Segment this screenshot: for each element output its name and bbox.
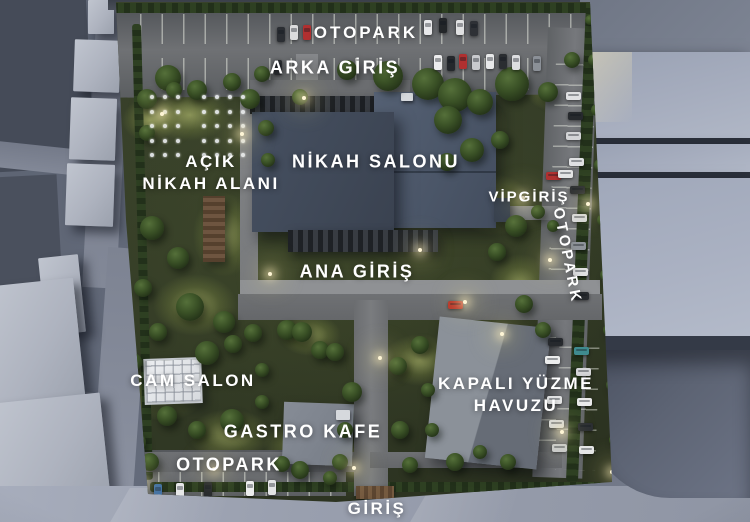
tree <box>167 247 189 269</box>
street-light <box>378 356 382 360</box>
ceremony-seat-dot <box>176 124 180 128</box>
ceremony-seat-dot <box>202 110 206 114</box>
label-otopark-bottom: OTOPARK <box>176 453 282 476</box>
car <box>558 170 573 178</box>
street-light <box>352 466 356 470</box>
ceremony-seat-dot <box>202 95 206 99</box>
tree <box>292 322 312 342</box>
tree <box>134 279 152 297</box>
tree <box>255 395 269 409</box>
street-light <box>548 258 552 262</box>
car <box>268 480 276 495</box>
tree <box>505 215 527 237</box>
tree <box>176 293 204 321</box>
tree <box>342 382 362 402</box>
street-light <box>463 300 467 304</box>
ceremony-seat-dot <box>176 110 180 114</box>
ceremony-seat-dot <box>215 95 219 99</box>
street-light <box>302 96 306 100</box>
car <box>566 92 581 100</box>
car <box>277 27 285 42</box>
facade-glow <box>592 52 632 122</box>
street-light <box>560 430 564 434</box>
label-arka-giris: ARKA GİRİŞ <box>270 56 400 79</box>
car <box>472 55 480 70</box>
ceremony-seat-dot <box>228 124 232 128</box>
ceremony-seat-dot <box>163 139 167 143</box>
ceremony-seat-dot <box>228 139 232 143</box>
tree <box>495 67 529 101</box>
street-light <box>586 202 590 206</box>
label-vip-giris: VİPGİRİŞ <box>488 187 569 207</box>
tree <box>421 383 435 397</box>
car <box>574 347 589 355</box>
ceremony-seat-dot <box>228 95 232 99</box>
street-light <box>240 132 244 136</box>
label-nikah-salonu: NİKAH SALONU <box>292 150 460 173</box>
car <box>566 132 581 140</box>
tree <box>389 357 407 375</box>
label-line: NİKAH ALANI <box>142 173 279 195</box>
tree <box>244 324 262 342</box>
car <box>486 54 494 69</box>
car <box>579 446 594 454</box>
car <box>439 18 447 33</box>
tree <box>254 66 270 82</box>
street-light <box>500 332 504 336</box>
car <box>290 25 298 40</box>
tree <box>425 423 439 437</box>
neighbor-building <box>69 97 117 161</box>
tree <box>141 453 159 471</box>
tree <box>515 295 533 313</box>
ceremony-seat-dot <box>215 124 219 128</box>
street-light <box>268 272 272 276</box>
street-light <box>160 112 164 116</box>
label-gastro-kafe: GASTRO KAFE <box>224 420 383 443</box>
car <box>456 20 464 35</box>
tree <box>538 82 558 102</box>
tree <box>323 471 337 485</box>
neighbor-building-round <box>590 350 750 498</box>
label-line: AÇIK <box>142 151 279 173</box>
car <box>424 20 432 35</box>
car <box>204 482 212 497</box>
street <box>580 0 750 56</box>
neighbor-building <box>73 39 121 93</box>
ceremony-seat-dot <box>163 95 167 99</box>
tree <box>491 131 509 149</box>
car <box>548 338 563 346</box>
ceremony-seat-dot <box>163 124 167 128</box>
tree <box>195 341 219 365</box>
car <box>447 56 455 71</box>
ceremony-seat-dot <box>150 95 154 99</box>
car <box>552 444 567 452</box>
car <box>499 54 507 69</box>
label-giris: GİRİŞ <box>348 498 407 520</box>
car <box>448 301 463 309</box>
tree <box>140 216 164 240</box>
neighbor-building <box>65 163 115 227</box>
car <box>303 25 311 40</box>
tree <box>391 421 409 439</box>
tree <box>446 453 464 471</box>
car <box>459 54 467 69</box>
tree <box>255 363 269 377</box>
car <box>578 423 593 431</box>
tree <box>258 120 274 136</box>
tree <box>402 457 418 473</box>
label-line: KAPALI YÜZME <box>438 373 594 395</box>
car <box>570 186 585 194</box>
tree <box>460 138 484 162</box>
neighbor-building-large <box>596 178 750 342</box>
car <box>568 112 583 120</box>
tree <box>240 89 260 109</box>
street-light <box>418 248 422 252</box>
tree <box>467 89 493 115</box>
ceremony-seat-dot <box>241 110 245 114</box>
tree <box>213 311 235 333</box>
label-acik-nikah-alani: AÇIK NİKAH ALANI <box>142 151 279 195</box>
tree <box>488 243 506 261</box>
tree <box>223 73 241 91</box>
ceremony-seat-dot <box>202 124 206 128</box>
ceremony-seat-dot <box>176 95 180 99</box>
label-ana-giris: ANA GİRİŞ <box>300 260 415 283</box>
ceremony-seat-dot <box>176 139 180 143</box>
ceremony-seat-dot <box>241 124 245 128</box>
neighbor-building-large <box>592 52 750 138</box>
neighbor-building-large <box>594 144 750 172</box>
tree <box>224 335 242 353</box>
ceremony-seat-dot <box>241 139 245 143</box>
tree <box>291 461 309 479</box>
street-light <box>140 480 144 484</box>
ceremony-seat-dot <box>150 139 154 143</box>
tree <box>531 205 545 219</box>
ceremony-seat-dot <box>215 110 219 114</box>
tree <box>411 336 429 354</box>
car <box>545 356 560 364</box>
ceremony-seat-dot <box>150 124 154 128</box>
tree <box>137 89 157 109</box>
car <box>569 158 584 166</box>
tree <box>332 454 348 470</box>
tree <box>535 322 551 338</box>
tree <box>157 406 177 426</box>
car <box>533 56 541 71</box>
tree <box>188 421 206 439</box>
car <box>572 214 587 222</box>
tree <box>326 343 344 361</box>
ceremony-seat-dot <box>202 139 206 143</box>
car <box>512 55 520 70</box>
car <box>470 21 478 36</box>
tree <box>500 454 516 470</box>
ceremony-seat-dot <box>241 95 245 99</box>
ceremony-seat-dot <box>228 110 232 114</box>
label-line: HAVUZU <box>438 395 594 417</box>
car <box>549 420 564 428</box>
car <box>434 55 442 70</box>
ceremony-seat-dot <box>215 139 219 143</box>
site-plan-render: OTOPARK ARKA GİRİŞ AÇIK NİKAH ALANI NİKA… <box>0 0 750 522</box>
tree <box>564 52 580 68</box>
label-kapali-yuzme-havuzu: KAPALI YÜZME HAVUZU <box>438 373 594 417</box>
tree <box>473 445 487 459</box>
label-otopark-top: OTOPARK <box>314 22 418 44</box>
ceremony-seat-dot <box>150 110 154 114</box>
tree <box>149 323 167 341</box>
label-cam-salon: CAM SALON <box>130 370 255 392</box>
car <box>246 481 254 496</box>
tree <box>434 106 462 134</box>
